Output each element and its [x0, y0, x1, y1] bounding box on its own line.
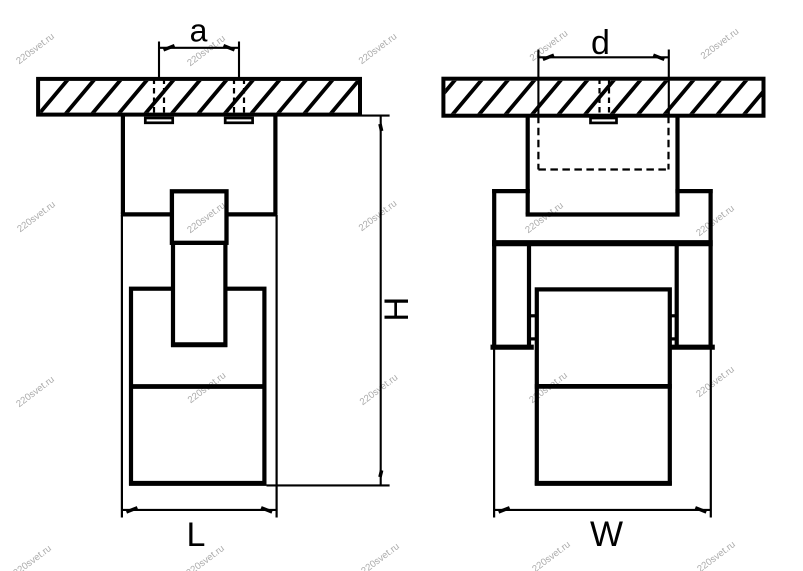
svg-text:d: d [591, 24, 610, 62]
svg-text:a: a [190, 13, 208, 49]
svg-text:W: W [590, 515, 623, 554]
svg-text:L: L [187, 516, 206, 554]
svg-text:H: H [378, 297, 416, 322]
